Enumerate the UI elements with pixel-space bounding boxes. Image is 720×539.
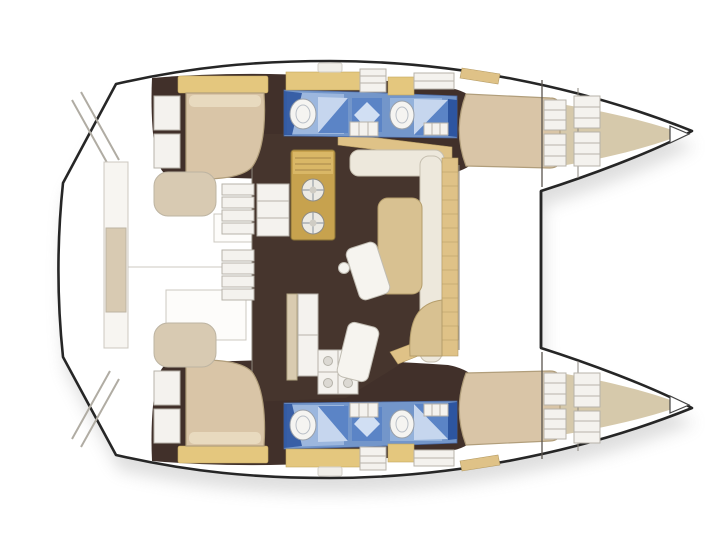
wardrobe: [154, 96, 180, 130]
locker: [544, 134, 566, 166]
starboard-bathrooms: [284, 401, 457, 470]
step: [222, 184, 254, 195]
sink-bowl: [324, 379, 333, 388]
step: [222, 210, 254, 221]
headboard-shelf: [178, 76, 268, 93]
step: [222, 250, 254, 261]
floor-plan-svg: [0, 0, 720, 539]
toilet: [350, 122, 378, 136]
locker: [574, 132, 600, 166]
galley-appliance: [257, 184, 289, 236]
deck-hatch: [318, 467, 342, 476]
burner-center: [310, 187, 317, 194]
wardrobe: [154, 134, 180, 168]
bathroom-dark-panel: [448, 99, 457, 137]
bathroom-cabinet-tan: [286, 72, 360, 90]
bathroom-cabinet-tan: [388, 77, 414, 95]
burner-center: [310, 220, 317, 227]
deck-hatch: [318, 63, 342, 72]
step: [222, 276, 254, 287]
step: [222, 289, 254, 300]
washbasin: [390, 101, 414, 129]
locker: [574, 96, 600, 128]
step: [222, 223, 254, 234]
pillows: [189, 95, 261, 107]
counter-strip: [287, 294, 297, 380]
catamaran-floor-plan: [0, 0, 720, 539]
galley-sink-top: [293, 152, 333, 174]
aft-platform: [104, 162, 128, 348]
step: [222, 197, 254, 208]
sink-bowl: [344, 379, 353, 388]
aft-bench: [106, 228, 126, 312]
cabin-bench: [154, 172, 216, 216]
locker: [544, 100, 566, 130]
port-bathrooms: [284, 69, 457, 138]
toilet: [424, 123, 448, 135]
sink-bowl: [324, 357, 333, 366]
stool: [339, 263, 350, 274]
step: [222, 263, 254, 274]
bathroom-cabinet: [360, 69, 386, 92]
washbasin: [290, 99, 316, 129]
